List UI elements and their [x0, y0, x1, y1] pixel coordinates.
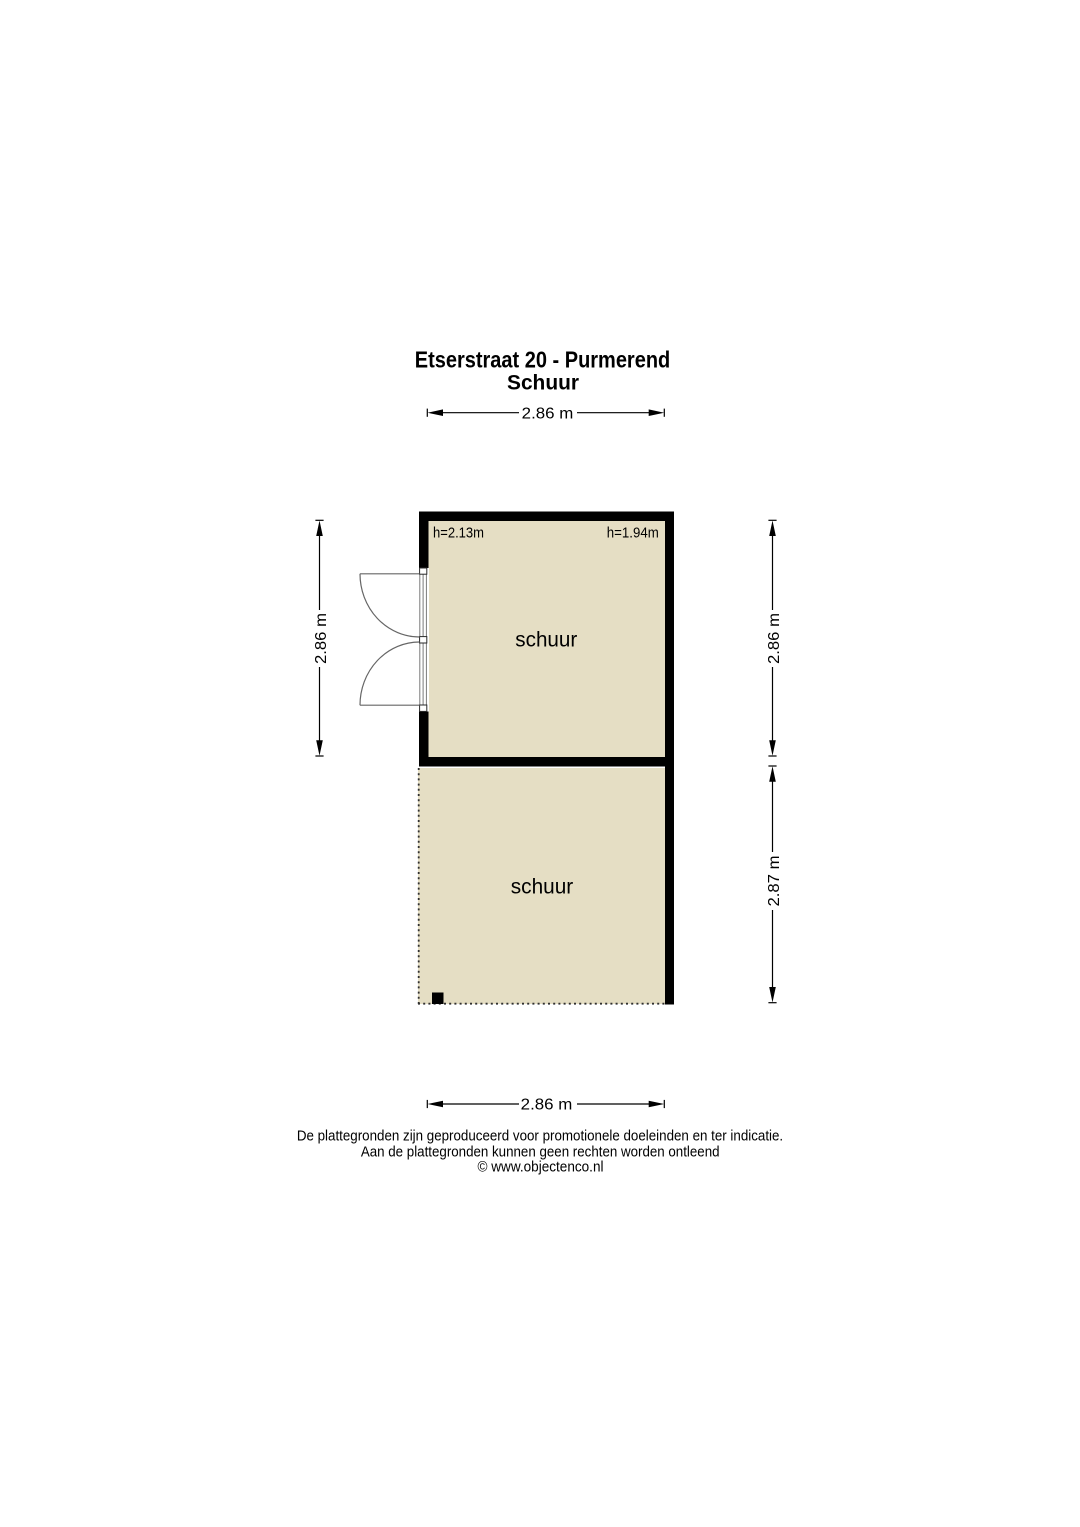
svg-text:2.87 m: 2.87 m	[766, 856, 783, 907]
svg-text:Schuur: Schuur	[507, 370, 580, 394]
svg-text:h=1.94m: h=1.94m	[607, 525, 659, 541]
svg-text:h=2.13m: h=2.13m	[433, 525, 484, 541]
svg-text:Aan de plattegronden kunnen ge: Aan de plattegronden kunnen geen rechten…	[361, 1145, 720, 1161]
svg-text:© www.objectenco.nl: © www.objectenco.nl	[478, 1160, 604, 1176]
svg-text:2.86 m: 2.86 m	[313, 613, 330, 664]
svg-text:2.86 m: 2.86 m	[521, 1097, 573, 1114]
svg-text:schuur: schuur	[511, 874, 574, 898]
svg-text:2.86 m: 2.86 m	[522, 405, 574, 422]
svg-text:De plattegronden zijn geproduc: De plattegronden zijn geproduceerd voor …	[297, 1128, 783, 1144]
svg-text:Etserstraat 20 - Purmerend: Etserstraat 20 - Purmerend	[415, 347, 671, 373]
svg-text:2.86 m: 2.86 m	[766, 613, 783, 664]
svg-text:schuur: schuur	[515, 628, 577, 652]
